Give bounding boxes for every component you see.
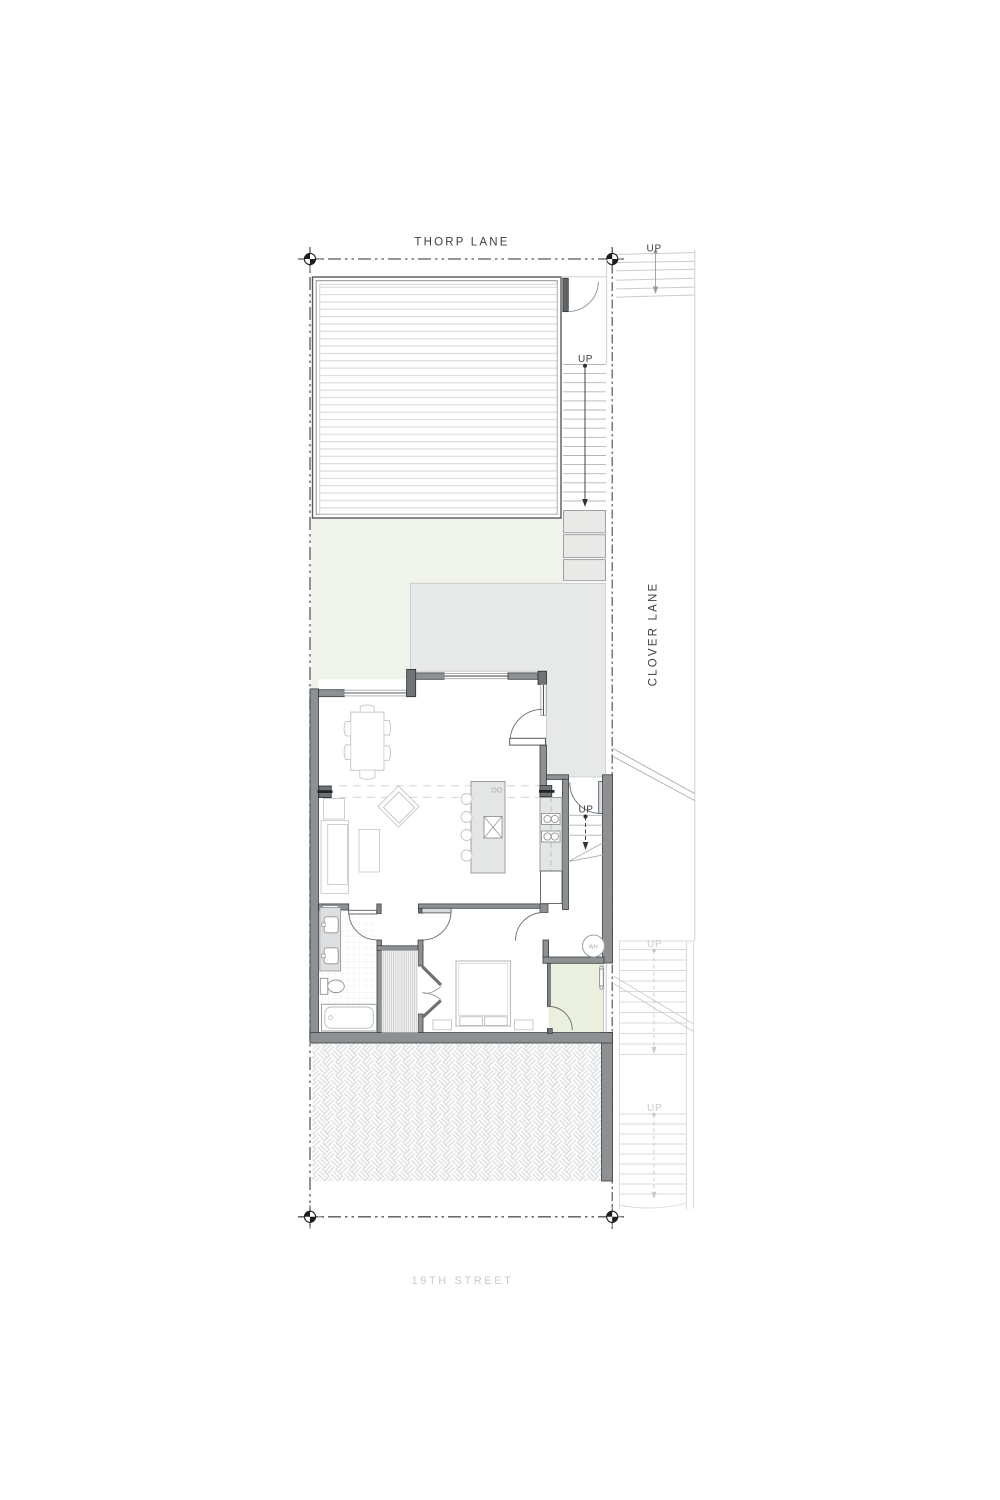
svg-text:UP: UP (647, 939, 663, 950)
svg-text:WH: WH (589, 945, 598, 951)
svg-text:19TH STREET: 19TH STREET (412, 1275, 514, 1287)
svg-text:THORP LANE: THORP LANE (414, 237, 509, 249)
svg-text:UP: UP (578, 354, 593, 365)
svg-text:CLOVER LANE: CLOVER LANE (648, 582, 660, 687)
svg-text:UP: UP (579, 805, 594, 816)
svg-text:UP: UP (647, 1103, 663, 1114)
svg-text:UP: UP (647, 244, 663, 255)
